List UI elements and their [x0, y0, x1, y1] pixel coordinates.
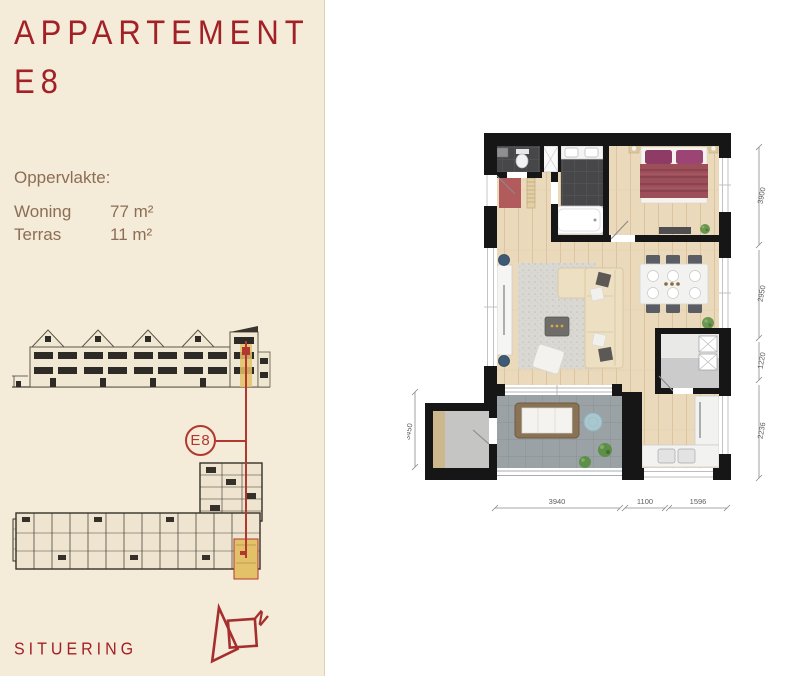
tech-door: [673, 388, 693, 394]
entrance-door: [484, 175, 497, 206]
cushion: [590, 287, 604, 301]
cooktop: [658, 449, 675, 463]
dresser: [659, 227, 691, 234]
sink: [678, 449, 695, 463]
bathroom-floor: [561, 158, 603, 206]
dim-bottom-1: 3940: [549, 497, 566, 506]
chair: [666, 255, 680, 265]
situering-label: SITUERING: [14, 640, 137, 660]
dim-left-1: 3450: [407, 423, 414, 441]
outdoor-table: [584, 413, 602, 431]
chair: [646, 255, 660, 265]
cushion: [592, 333, 606, 347]
bathroom-door: [551, 182, 558, 204]
site-plan-drawing: [10, 455, 272, 587]
plant: [598, 443, 612, 457]
plant: [702, 317, 714, 329]
terrace-railing: [497, 468, 622, 478]
planter: [499, 356, 510, 367]
doormat: [499, 178, 521, 208]
planter: [499, 255, 510, 266]
toilet-door: [507, 172, 527, 178]
area-heading: Oppervlakte:: [14, 168, 153, 188]
chair: [666, 303, 680, 313]
toilet: [516, 154, 528, 168]
plant: [700, 224, 710, 234]
sidebar: APPARTEMENT E8 Oppervlakte: Woning 77 m²…: [0, 0, 325, 676]
bedroom-door: [611, 235, 635, 242]
dim-right-1: 3900: [756, 187, 768, 205]
page-title-line1: APPARTEMENT: [14, 8, 310, 57]
storage-door: [489, 418, 497, 444]
area-row-label: Woning: [14, 202, 110, 222]
building-elevation-drawing: [10, 324, 272, 394]
pillow: [676, 150, 703, 164]
compass-north-letter: N: [249, 606, 272, 630]
compass-needle-icon: [198, 606, 239, 661]
apartment-floorplan: 3940 1100 1596 3450 3900 2950 1220 2236: [407, 100, 795, 552]
corner-sink: [497, 148, 508, 157]
north-arrow-compass: N: [198, 594, 280, 670]
chair: [646, 303, 660, 313]
sink-basin: [585, 148, 598, 157]
dim-right-2: 2950: [756, 285, 768, 303]
pillow: [645, 150, 672, 164]
area-row-value: 11 m²: [110, 225, 153, 245]
page-title: APPARTEMENT E8: [14, 8, 310, 107]
area-table: Woning 77 m² Terras 11 m²: [14, 202, 153, 245]
unit-badge: E8: [185, 425, 216, 456]
brochure-page: APPARTEMENT E8 Oppervlakte: Woning 77 m²…: [0, 0, 795, 676]
chair: [688, 255, 702, 265]
sliding-door: [505, 385, 612, 395]
sink-basin: [565, 148, 578, 157]
dim-bottom-2: 1100: [637, 497, 653, 506]
page-title-line2: E8: [14, 57, 310, 106]
area-row-label: Terras: [14, 225, 110, 245]
cushion: [598, 347, 613, 362]
plant: [579, 456, 591, 468]
dim-right-4: 2236: [756, 422, 768, 440]
dim-bottom-3: 1596: [690, 497, 707, 506]
wardrobe: [527, 174, 535, 208]
area-block: Oppervlakte: Woning 77 m² Terras 11 m²: [14, 168, 153, 245]
locator-line-horizontal: [216, 440, 246, 442]
dim-right-3: 1220: [756, 352, 768, 370]
locator-line-vertical: [245, 341, 247, 558]
kitchen-counter-right: [695, 396, 719, 445]
area-row-value: 77 m²: [110, 202, 153, 222]
blanket: [640, 164, 708, 198]
window: [644, 468, 713, 480]
chair: [688, 303, 702, 313]
window: [719, 396, 731, 454]
